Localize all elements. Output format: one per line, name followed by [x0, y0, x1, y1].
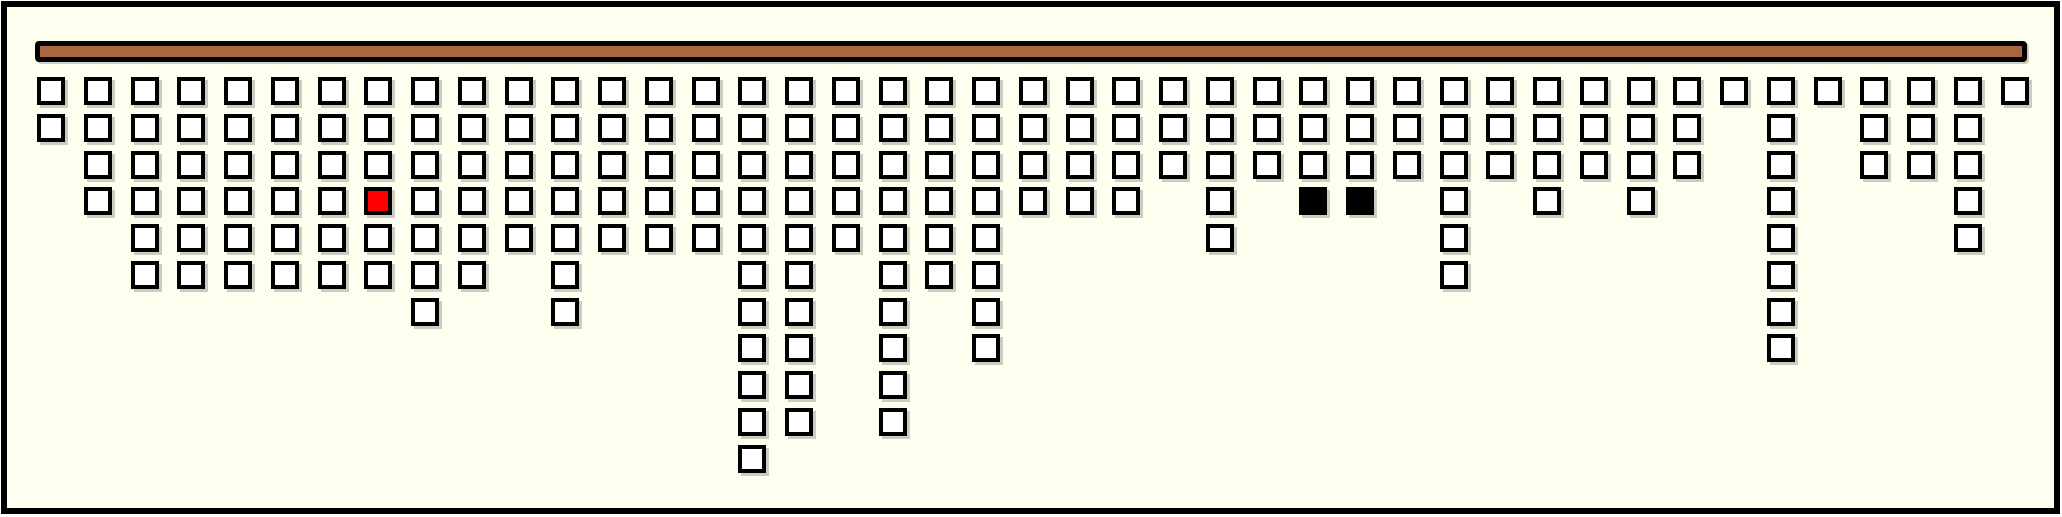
unit-square	[1486, 114, 1514, 142]
unit-square	[411, 114, 439, 142]
unit-square	[1159, 114, 1187, 142]
unit-square	[84, 77, 112, 105]
unit-square	[972, 187, 1000, 215]
unit-square	[738, 445, 766, 473]
unit-square	[177, 151, 205, 179]
unit-square	[1299, 114, 1327, 142]
unit-square	[1954, 151, 1982, 179]
unit-square	[1860, 114, 1888, 142]
unit-square	[1907, 77, 1935, 105]
unit-square	[505, 114, 533, 142]
unit-square	[1440, 187, 1468, 215]
unit-square	[1580, 151, 1608, 179]
unit-square	[505, 77, 533, 105]
unit-square	[925, 224, 953, 252]
unit-square	[972, 298, 1000, 326]
unit-square	[411, 187, 439, 215]
unit-square	[1066, 187, 1094, 215]
unit-square	[1112, 187, 1140, 215]
unit-square	[738, 298, 766, 326]
unit-square	[1627, 187, 1655, 215]
unit-square	[925, 77, 953, 105]
unit-square	[318, 187, 346, 215]
unit-square	[364, 224, 392, 252]
unit-square	[1767, 298, 1795, 326]
unit-square	[879, 408, 907, 436]
unit-square	[224, 261, 252, 289]
unit-square	[458, 261, 486, 289]
unit-square	[131, 77, 159, 105]
unit-square	[645, 187, 673, 215]
unit-square	[645, 224, 673, 252]
unit-square	[1954, 77, 1982, 105]
unit-square	[692, 114, 720, 142]
unit-square	[832, 77, 860, 105]
unit-square	[1440, 261, 1468, 289]
unit-square	[785, 408, 813, 436]
unit-square	[1440, 224, 1468, 252]
unit-square	[1767, 187, 1795, 215]
unit-square	[785, 77, 813, 105]
unit-square	[925, 114, 953, 142]
unit-square	[271, 187, 299, 215]
unit-square	[1393, 151, 1421, 179]
unit-square	[364, 151, 392, 179]
unit-square	[972, 77, 1000, 105]
unit-square	[551, 151, 579, 179]
highlight-square	[1299, 187, 1327, 215]
unit-square	[131, 187, 159, 215]
unit-square	[645, 114, 673, 142]
unit-square	[458, 114, 486, 142]
unit-square	[1954, 187, 1982, 215]
unit-square	[1814, 77, 1842, 105]
unit-square	[1440, 114, 1468, 142]
unit-square	[271, 77, 299, 105]
unit-square	[1346, 77, 1374, 105]
unit-square	[879, 114, 907, 142]
unit-square	[1206, 151, 1234, 179]
unit-square	[832, 151, 860, 179]
unit-square	[1253, 114, 1281, 142]
unit-square	[131, 224, 159, 252]
unit-square	[505, 151, 533, 179]
unit-square	[551, 224, 579, 252]
unit-square	[1673, 77, 1701, 105]
unit-square	[879, 224, 907, 252]
unit-square	[1954, 114, 1982, 142]
unit-square	[972, 334, 1000, 362]
unit-square	[879, 151, 907, 179]
unit-square	[598, 224, 626, 252]
unit-square	[972, 261, 1000, 289]
unit-square	[832, 187, 860, 215]
unit-square	[1299, 77, 1327, 105]
plot-frame	[1, 1, 2060, 514]
unit-square	[551, 187, 579, 215]
unit-square	[645, 77, 673, 105]
unit-square	[271, 224, 299, 252]
unit-square	[972, 114, 1000, 142]
unit-square	[551, 114, 579, 142]
unit-square	[925, 151, 953, 179]
highlight-square	[364, 187, 392, 215]
unit-square	[271, 114, 299, 142]
unit-square	[224, 151, 252, 179]
unit-square	[1767, 334, 1795, 362]
unit-square	[832, 224, 860, 252]
highlight-square	[1346, 187, 1374, 215]
unit-square	[738, 224, 766, 252]
unit-square	[271, 151, 299, 179]
unit-square	[551, 298, 579, 326]
unit-square	[84, 151, 112, 179]
unit-square	[879, 261, 907, 289]
unit-square	[1440, 77, 1468, 105]
unit-square	[738, 334, 766, 362]
unit-square	[879, 334, 907, 362]
unit-square	[1767, 224, 1795, 252]
unit-square	[785, 334, 813, 362]
unit-square	[925, 187, 953, 215]
unit-square	[224, 114, 252, 142]
unit-square	[1533, 114, 1561, 142]
unit-square	[1720, 77, 1748, 105]
unit-square	[1907, 151, 1935, 179]
unit-square	[785, 261, 813, 289]
chart-stage	[0, 0, 2062, 517]
unit-square	[925, 261, 953, 289]
unit-square	[738, 371, 766, 399]
unit-square	[1533, 187, 1561, 215]
unit-square	[1580, 114, 1608, 142]
unit-square	[318, 261, 346, 289]
unit-square	[411, 151, 439, 179]
unit-square	[738, 408, 766, 436]
unit-square	[411, 261, 439, 289]
unit-square	[1767, 261, 1795, 289]
unit-square	[785, 371, 813, 399]
unit-square	[505, 187, 533, 215]
unit-square	[224, 187, 252, 215]
unit-square	[364, 114, 392, 142]
unit-square	[1533, 151, 1561, 179]
unit-square	[1954, 224, 1982, 252]
unit-square	[738, 77, 766, 105]
unit-square	[411, 298, 439, 326]
unit-square	[598, 114, 626, 142]
unit-square	[411, 224, 439, 252]
unit-square	[972, 151, 1000, 179]
unit-square	[785, 224, 813, 252]
unit-square	[224, 224, 252, 252]
unit-square	[1486, 77, 1514, 105]
unit-square	[458, 77, 486, 105]
unit-square	[1066, 77, 1094, 105]
unit-square	[645, 151, 673, 179]
unit-square	[177, 77, 205, 105]
unit-square	[84, 187, 112, 215]
unit-square	[177, 114, 205, 142]
unit-square	[318, 224, 346, 252]
unit-square	[1627, 77, 1655, 105]
unit-square	[1112, 114, 1140, 142]
unit-square	[1673, 114, 1701, 142]
unit-square	[364, 261, 392, 289]
unit-square	[177, 187, 205, 215]
unit-square	[505, 224, 533, 252]
unit-square	[1206, 114, 1234, 142]
unit-square	[1206, 224, 1234, 252]
unit-square	[879, 77, 907, 105]
unit-square	[1112, 151, 1140, 179]
unit-square	[364, 77, 392, 105]
unit-square	[1159, 151, 1187, 179]
unit-square	[224, 77, 252, 105]
unit-square	[271, 261, 299, 289]
unit-square	[1393, 114, 1421, 142]
unit-square	[692, 187, 720, 215]
unit-square	[738, 261, 766, 289]
unit-square	[1767, 151, 1795, 179]
unit-square	[131, 261, 159, 289]
unit-square	[551, 261, 579, 289]
unit-square	[1019, 151, 1047, 179]
unit-square	[692, 224, 720, 252]
unit-square	[1206, 187, 1234, 215]
unit-square	[1206, 77, 1234, 105]
unit-square	[131, 114, 159, 142]
unit-square	[177, 261, 205, 289]
unit-square	[1767, 114, 1795, 142]
unit-square	[785, 187, 813, 215]
unit-square	[458, 224, 486, 252]
unit-square	[1159, 77, 1187, 105]
unit-square	[84, 114, 112, 142]
unit-square	[1019, 114, 1047, 142]
unit-square	[692, 151, 720, 179]
unit-square	[1393, 77, 1421, 105]
unit-square	[458, 151, 486, 179]
unit-square	[1019, 187, 1047, 215]
unit-square	[598, 77, 626, 105]
unit-square	[318, 151, 346, 179]
unit-square	[1767, 77, 1795, 105]
unit-square	[1299, 151, 1327, 179]
unit-square	[411, 77, 439, 105]
unit-square	[785, 151, 813, 179]
unit-square	[738, 187, 766, 215]
unit-square	[1673, 151, 1701, 179]
unit-square	[1112, 77, 1140, 105]
unit-square	[692, 77, 720, 105]
unit-square	[1253, 77, 1281, 105]
unit-square	[1066, 114, 1094, 142]
unit-square	[1440, 151, 1468, 179]
unit-square	[1580, 77, 1608, 105]
unit-square	[1860, 77, 1888, 105]
unit-square	[598, 187, 626, 215]
unit-square	[1346, 114, 1374, 142]
unit-square	[879, 187, 907, 215]
unit-square	[1253, 151, 1281, 179]
unit-square	[879, 298, 907, 326]
unit-square	[879, 371, 907, 399]
unit-square	[1627, 114, 1655, 142]
unit-square	[1907, 114, 1935, 142]
unit-square	[177, 224, 205, 252]
unit-square	[738, 114, 766, 142]
unit-square	[1486, 151, 1514, 179]
unit-squares-layer	[7, 7, 2054, 508]
unit-square	[832, 114, 860, 142]
unit-square	[972, 224, 1000, 252]
unit-square	[1860, 151, 1888, 179]
unit-square	[738, 151, 766, 179]
unit-square	[1627, 151, 1655, 179]
unit-square	[785, 114, 813, 142]
unit-square	[37, 114, 65, 142]
unit-square	[2001, 77, 2029, 105]
unit-square	[318, 77, 346, 105]
unit-square	[551, 77, 579, 105]
unit-square	[785, 298, 813, 326]
unit-square	[37, 77, 65, 105]
unit-square	[131, 151, 159, 179]
unit-square	[1066, 151, 1094, 179]
unit-square	[598, 151, 626, 179]
unit-square	[1346, 151, 1374, 179]
unit-square	[318, 114, 346, 142]
unit-square	[1019, 77, 1047, 105]
unit-square	[1533, 77, 1561, 105]
unit-square	[458, 187, 486, 215]
